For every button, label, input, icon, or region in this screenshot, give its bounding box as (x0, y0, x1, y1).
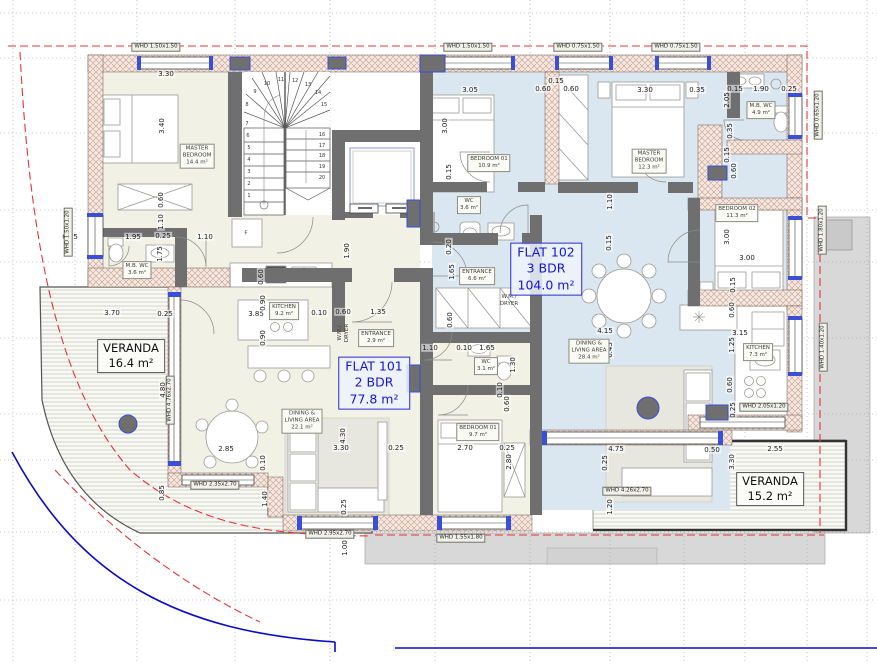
floor-plan-canvas: 3.303.050.600.150.603.300.350.151.900.25… (0, 0, 877, 664)
floor-plan-drawing (0, 0, 877, 664)
staircase (244, 72, 330, 215)
